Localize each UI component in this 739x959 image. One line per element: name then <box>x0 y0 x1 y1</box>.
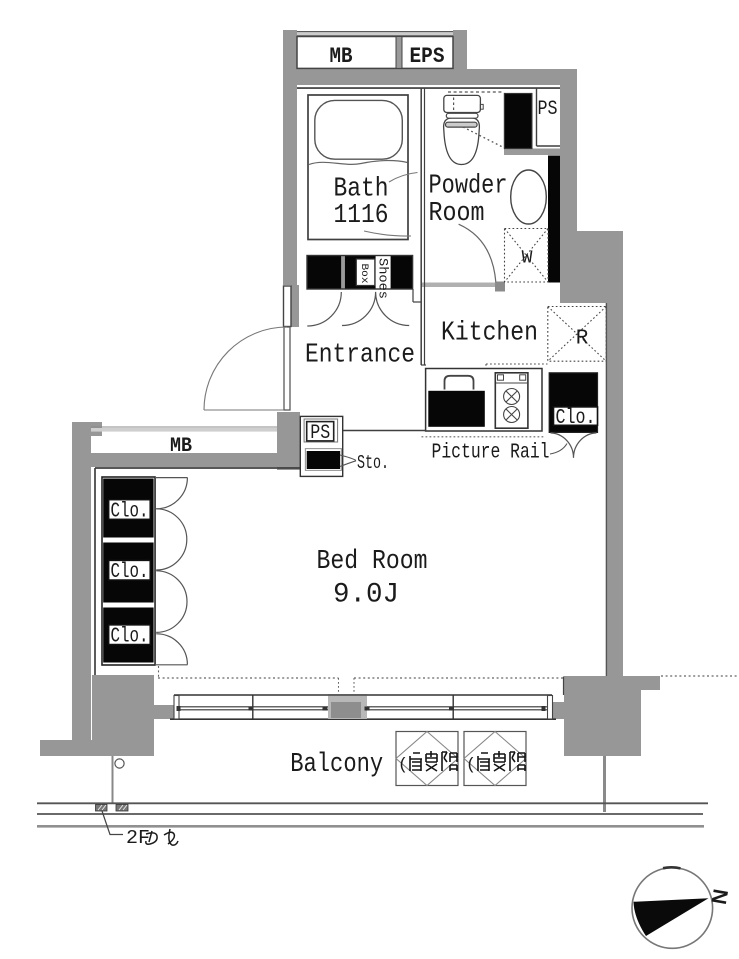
svg-text:1116: 1116 <box>334 201 389 231</box>
svg-text:Bed Room: Bed Room <box>317 547 428 577</box>
svg-text:R: R <box>576 328 589 351</box>
svg-text:Picture Rail: Picture Rail <box>432 442 550 465</box>
svg-text:Clo.: Clo. <box>111 501 149 524</box>
svg-text:2F: 2F <box>126 827 150 849</box>
svg-text:(: ( <box>398 756 408 775</box>
svg-text:Powder: Powder <box>429 172 508 202</box>
svg-text:Clo.: Clo. <box>111 626 149 649</box>
svg-text:9.0J: 9.0J <box>333 580 399 611</box>
svg-text:PS: PS <box>310 422 330 445</box>
svg-text:Balcony: Balcony <box>290 750 383 780</box>
svg-text:(: ( <box>466 756 476 775</box>
svg-text:PS: PS <box>538 98 558 121</box>
svg-text:Shoes: Shoes <box>376 258 390 299</box>
svg-text:Bath: Bath <box>334 175 389 205</box>
svg-text:Clo.: Clo. <box>556 407 596 430</box>
svg-text:Box: Box <box>358 264 370 284</box>
svg-text:Sto.: Sto. <box>357 452 389 474</box>
svg-text:MB: MB <box>170 435 192 458</box>
svg-text:W: W <box>522 249 533 269</box>
svg-text:Kitchen: Kitchen <box>441 319 538 349</box>
svg-text:EPS: EPS <box>410 44 445 69</box>
svg-text:Room: Room <box>429 199 485 229</box>
svg-text:Entrance: Entrance <box>305 341 415 371</box>
svg-text:MB: MB <box>330 44 353 69</box>
svg-text:Clo.: Clo. <box>111 561 149 584</box>
